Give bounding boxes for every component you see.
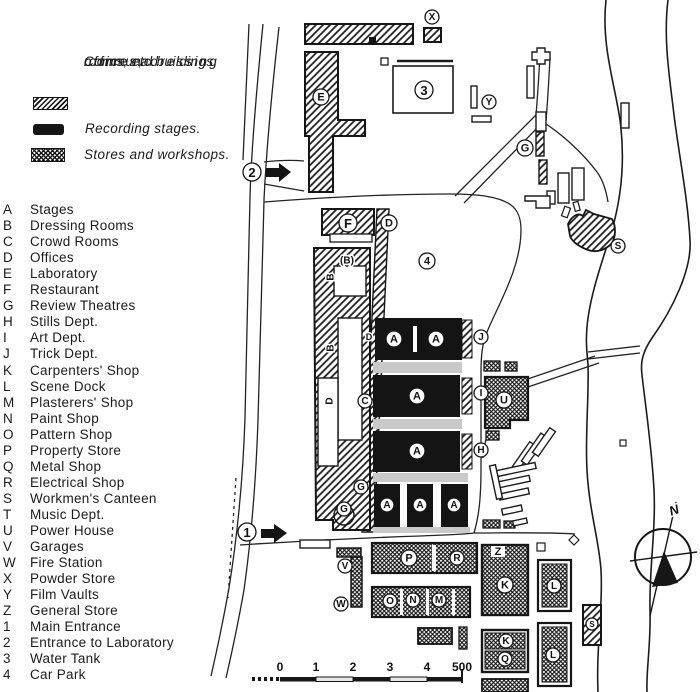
map-label-B: B bbox=[326, 273, 337, 280]
entrance-arrows bbox=[261, 163, 291, 543]
map-label-L: L bbox=[547, 579, 561, 593]
svg-text:A: A bbox=[413, 391, 421, 403]
building-review-theatres-bottom bbox=[539, 160, 547, 184]
map-label-Z: Z bbox=[495, 546, 502, 558]
svg-text:C: C bbox=[361, 396, 368, 407]
svg-text:U: U bbox=[500, 395, 508, 407]
canteen-stub bbox=[573, 201, 580, 211]
entrance-arrow-laboratory bbox=[266, 163, 291, 182]
map-label-R: R bbox=[450, 551, 464, 565]
svg-text:X: X bbox=[429, 12, 436, 23]
map-label-I: I bbox=[474, 386, 488, 400]
map-label-M: M bbox=[432, 593, 446, 607]
entrance-arrow-main bbox=[261, 524, 287, 543]
svg-text:K: K bbox=[501, 580, 509, 592]
map-label-A: A bbox=[409, 443, 425, 459]
svg-text:J: J bbox=[478, 332, 484, 343]
map-label-1: 1 bbox=[238, 523, 256, 541]
svg-text:3: 3 bbox=[420, 83, 427, 98]
map-label-4: 4 bbox=[419, 253, 435, 269]
map-label-E: E bbox=[313, 89, 329, 105]
svg-text:Q: Q bbox=[501, 654, 509, 665]
map-label-3: 3 bbox=[415, 81, 433, 99]
scale-tick-0: 0 bbox=[277, 660, 284, 674]
marker-diamond bbox=[569, 535, 579, 545]
svg-text:A: A bbox=[416, 500, 423, 511]
map-label-K: K bbox=[499, 634, 513, 648]
map-label-A: A bbox=[409, 388, 425, 404]
building bbox=[558, 173, 569, 203]
scale-tick-500: 500 bbox=[452, 660, 472, 674]
block-divider bbox=[432, 545, 436, 571]
film-vaults bbox=[472, 116, 491, 122]
scale-tick-1: 1 bbox=[313, 660, 320, 674]
courtyard bbox=[338, 318, 362, 440]
map-label-D: D bbox=[381, 215, 397, 231]
map-label-U: U bbox=[496, 392, 512, 408]
block-divider bbox=[426, 589, 429, 615]
svg-text:G: G bbox=[357, 482, 365, 493]
map-label-D: D bbox=[325, 397, 336, 404]
studio-map-page: Communal buildings, offices, dressing ro… bbox=[0, 0, 700, 692]
map-label-C: C bbox=[358, 394, 372, 408]
map-label-A: A bbox=[428, 331, 444, 347]
svg-text:R: R bbox=[453, 553, 461, 564]
small-building bbox=[381, 58, 388, 65]
map-label-W: W bbox=[334, 597, 348, 611]
compass-rose bbox=[630, 502, 697, 616]
stage-shading bbox=[373, 419, 462, 429]
l-building bbox=[525, 196, 550, 208]
map-label-V: V bbox=[338, 559, 352, 573]
small-building bbox=[537, 543, 545, 551]
svg-text:O: O bbox=[386, 596, 394, 607]
svg-text:A: A bbox=[413, 446, 421, 458]
svg-text:L: L bbox=[550, 650, 556, 661]
svg-text:K: K bbox=[502, 636, 510, 647]
building-store-strip bbox=[482, 679, 528, 692]
svg-text:V: V bbox=[342, 561, 349, 572]
small-store bbox=[483, 520, 500, 528]
review-theatre-office bbox=[536, 112, 546, 131]
building-review-theatres-top bbox=[536, 132, 544, 156]
svg-text:A: A bbox=[450, 500, 457, 511]
riverside-building bbox=[621, 103, 629, 128]
map-label-X: X bbox=[425, 10, 439, 24]
building-powder-store bbox=[424, 28, 441, 42]
svg-text:A: A bbox=[383, 500, 390, 511]
shed-cluster bbox=[490, 428, 556, 526]
svg-text:A: A bbox=[432, 334, 440, 346]
svg-text:S: S bbox=[615, 241, 622, 252]
map-label-N: N bbox=[406, 593, 420, 607]
svg-text:2: 2 bbox=[248, 165, 255, 180]
map-label-J: J bbox=[474, 330, 488, 344]
building-garages bbox=[351, 557, 362, 607]
map-label-N: N bbox=[667, 501, 682, 519]
scale-tick-4: 4 bbox=[424, 660, 431, 674]
small-building bbox=[620, 440, 626, 446]
svg-text:4: 4 bbox=[424, 256, 431, 268]
svg-text:F: F bbox=[344, 216, 352, 231]
map-label-G: G bbox=[517, 140, 533, 156]
scale-tick-3: 3 bbox=[387, 660, 394, 674]
building-front-offices bbox=[305, 24, 413, 44]
block-divider bbox=[400, 589, 403, 615]
svg-text:I: I bbox=[480, 388, 483, 399]
stage-shading bbox=[373, 527, 470, 533]
svg-text:G: G bbox=[521, 143, 530, 155]
map-label-S: S bbox=[586, 618, 598, 630]
map-label-F: F bbox=[339, 214, 357, 232]
block-divider bbox=[452, 589, 455, 615]
svg-text:E: E bbox=[317, 92, 324, 104]
map-label-Q: Q bbox=[498, 652, 512, 666]
stage-shading bbox=[373, 362, 462, 373]
courtyard bbox=[318, 378, 338, 466]
stage-shading bbox=[373, 473, 468, 482]
cross-building bbox=[532, 48, 550, 64]
map-label-H: H bbox=[474, 443, 488, 457]
building-garages-top bbox=[337, 548, 361, 557]
map-label-Y: Y bbox=[482, 95, 496, 109]
map-label-S: S bbox=[611, 239, 625, 253]
svg-text:P: P bbox=[405, 553, 412, 565]
map-label-A: A bbox=[386, 331, 402, 347]
svg-text:A: A bbox=[390, 334, 398, 346]
stage-divider bbox=[413, 326, 417, 352]
building-laboratory bbox=[305, 52, 365, 192]
map-label-O: O bbox=[383, 594, 397, 608]
map-label-D: D bbox=[366, 332, 373, 342]
svg-text:1: 1 bbox=[243, 525, 250, 540]
stage-edge-hatch bbox=[462, 434, 472, 469]
scale-tick-2: 2 bbox=[350, 660, 357, 674]
small-store bbox=[486, 431, 499, 440]
thin-building bbox=[527, 66, 534, 98]
small-workshop bbox=[459, 627, 467, 649]
building bbox=[572, 168, 584, 200]
svg-text:W: W bbox=[336, 599, 346, 610]
svg-text:N: N bbox=[409, 595, 416, 606]
site-plan: 01234500 X3YG2EFD4AAJAIUAHCGGAAA1VWSPRON… bbox=[0, 0, 700, 692]
small-store bbox=[484, 361, 500, 371]
map-label-(B): (B) bbox=[340, 256, 354, 267]
map-label-G: G bbox=[354, 480, 368, 494]
canteen-stub bbox=[561, 206, 570, 217]
compass-needle bbox=[652, 551, 678, 587]
map-label-L: L bbox=[546, 648, 560, 662]
svg-text:L: L bbox=[551, 581, 557, 592]
map-label-A: A bbox=[447, 498, 461, 512]
map-label-P: P bbox=[401, 550, 417, 566]
svg-text:M: M bbox=[435, 595, 443, 606]
svg-text:G: G bbox=[340, 504, 348, 515]
map-label-2: 2 bbox=[243, 163, 261, 181]
small-workshop bbox=[418, 628, 452, 644]
small-store bbox=[505, 362, 517, 371]
map-label-B: B bbox=[326, 344, 337, 351]
courtyard bbox=[334, 266, 366, 296]
svg-text:D: D bbox=[385, 218, 393, 230]
svg-text:S: S bbox=[589, 620, 595, 629]
svg-text:H: H bbox=[477, 445, 484, 456]
scale-bar: 01234500 bbox=[252, 660, 472, 683]
map-label-A: A bbox=[380, 498, 394, 512]
stage-edge-hatch bbox=[462, 378, 472, 414]
map-label-K: K bbox=[497, 577, 513, 593]
map-label-A: A bbox=[413, 498, 427, 512]
building-restaurant-annex bbox=[330, 234, 372, 242]
film-vaults bbox=[471, 86, 477, 108]
black-square bbox=[369, 37, 376, 44]
building-workmens-canteen bbox=[568, 210, 615, 251]
map-label-G: G bbox=[337, 502, 351, 516]
scale-tick-labels: 01234500 bbox=[277, 660, 473, 674]
svg-text:Y: Y bbox=[486, 97, 493, 108]
gatehouse bbox=[300, 540, 330, 548]
stage-edge-hatch bbox=[462, 320, 472, 358]
